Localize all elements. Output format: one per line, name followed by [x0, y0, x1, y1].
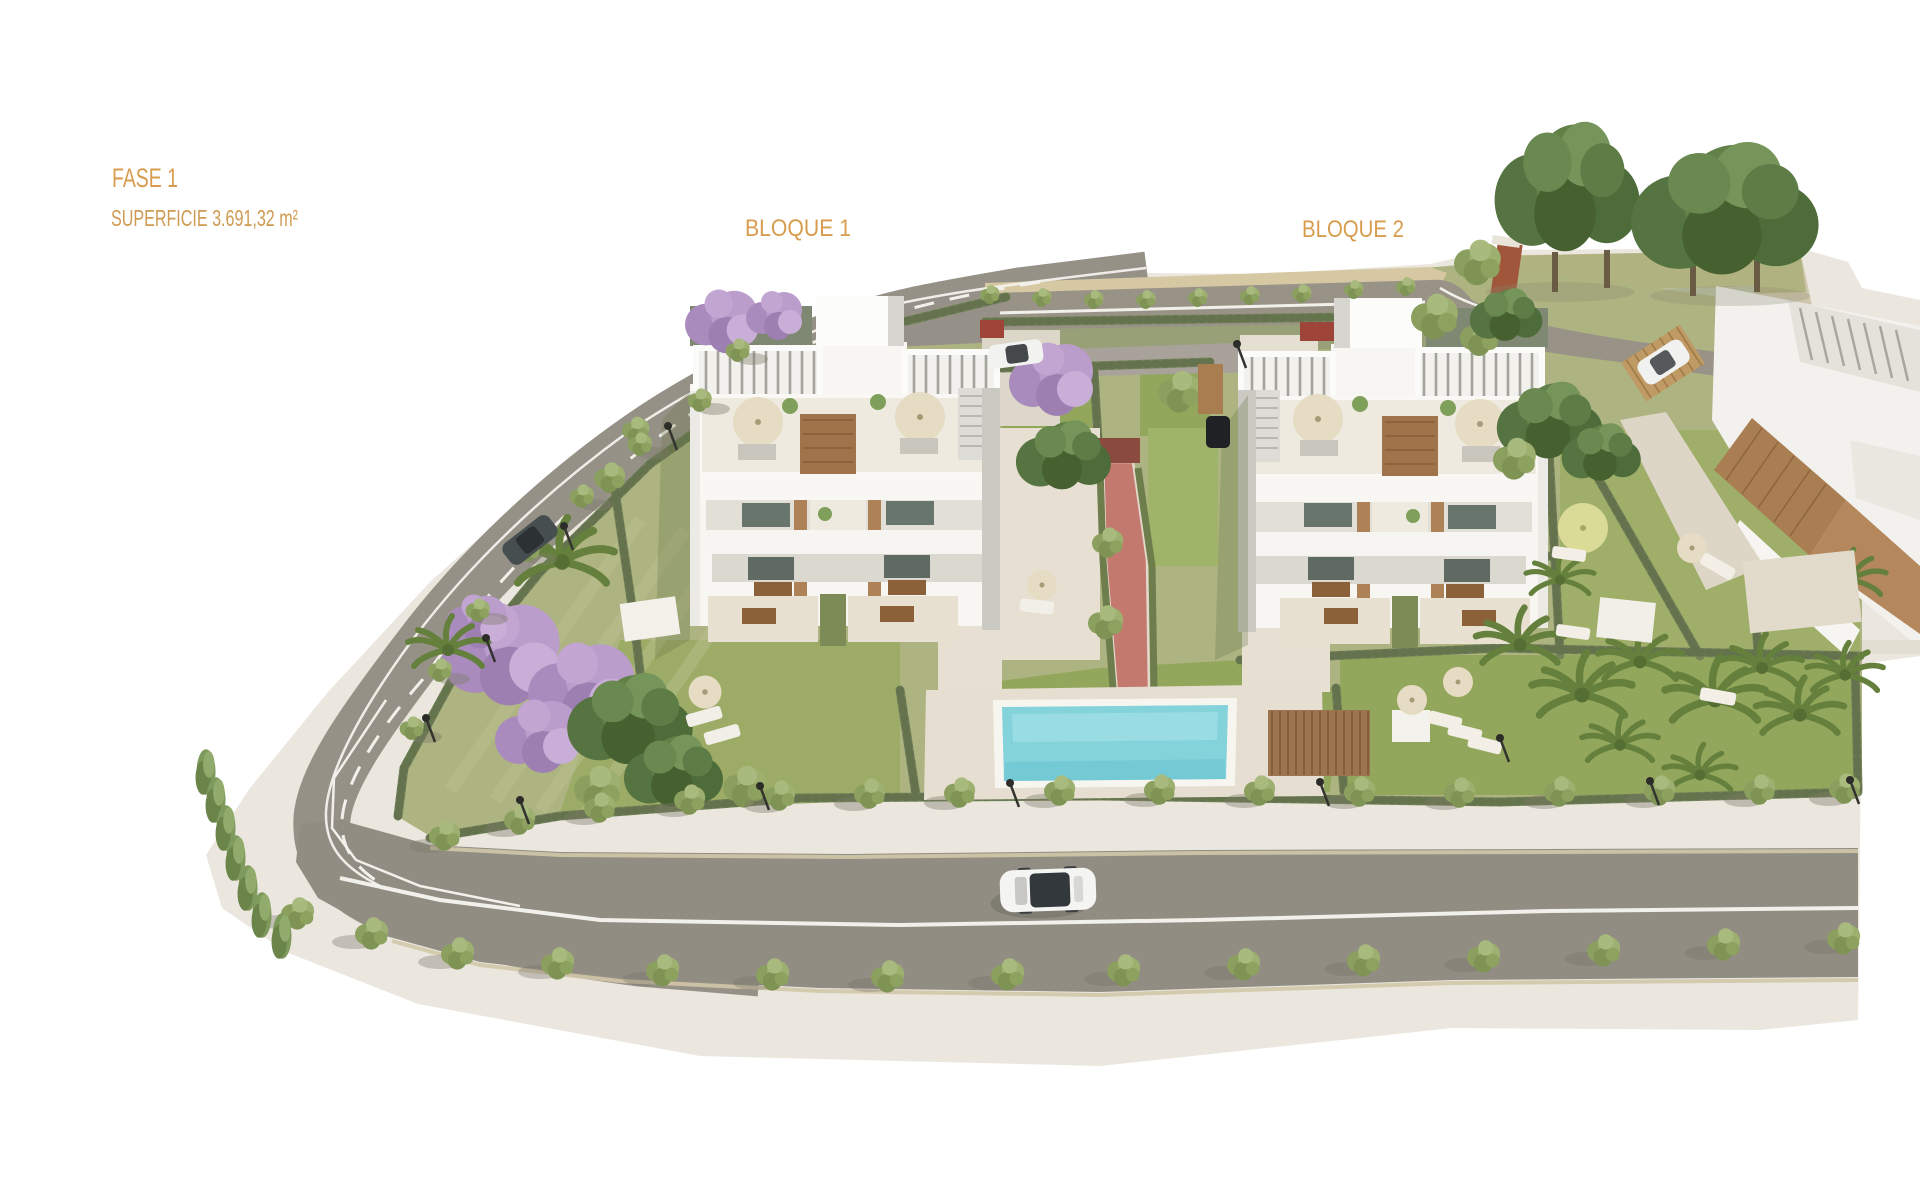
svg-text:FASE 1: FASE 1	[112, 163, 178, 193]
svg-text:BLOQUE 2: BLOQUE 2	[1302, 216, 1404, 243]
svg-text:SUPERFICIE 3.691,32 m²: SUPERFICIE 3.691,32 m²	[111, 205, 298, 231]
svg-text:BLOQUE 1: BLOQUE 1	[745, 215, 851, 242]
